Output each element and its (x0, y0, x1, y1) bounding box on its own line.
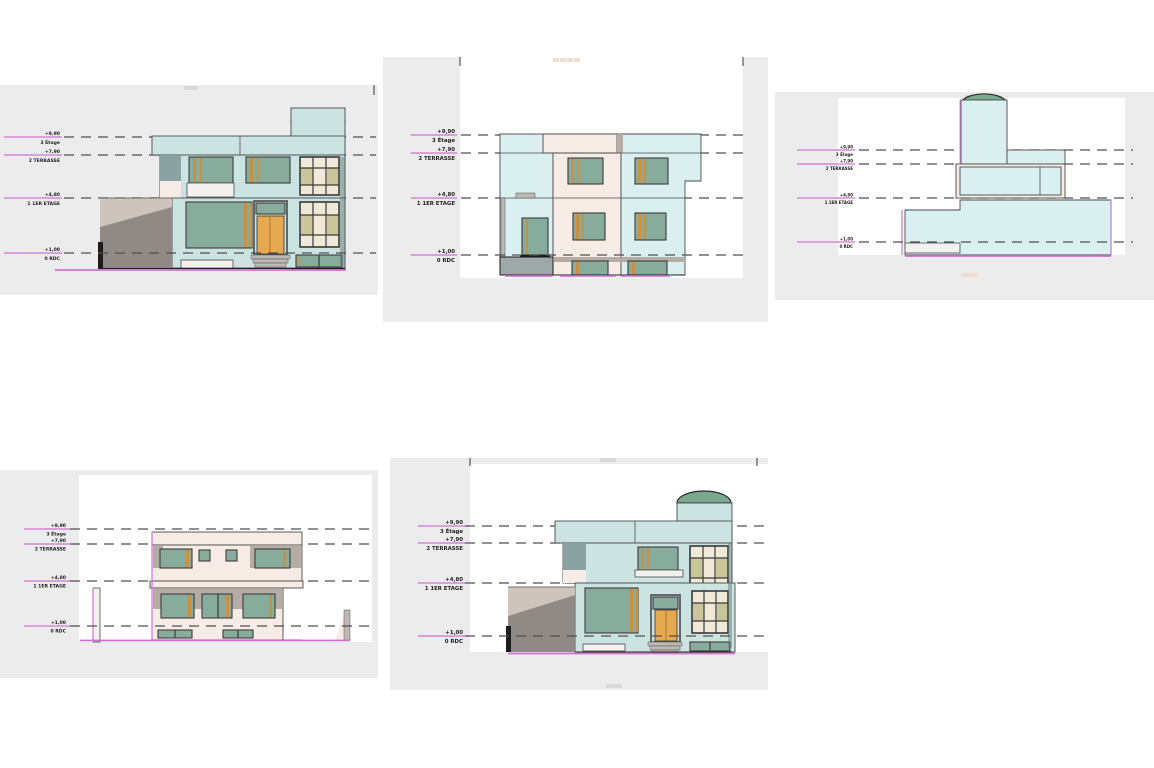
level-value: +9,90 (51, 523, 66, 529)
door-transom (653, 597, 678, 609)
picture-window (186, 202, 252, 248)
entry-door (254, 201, 287, 255)
level-label: 0 RDC (44, 256, 60, 262)
tower-shadow (728, 543, 732, 648)
level-value: +1,00 (45, 247, 60, 253)
drawing-title-placeholder (961, 273, 977, 277)
level-value: +9,90 (437, 129, 455, 135)
level-value: +4,80 (437, 192, 455, 198)
side-elevation-left-drawing: +9,90 3 Étage +7,90 2 TERRASSE +4,80 1 1… (0, 470, 378, 678)
top-parapet (152, 532, 302, 545)
level-label: 0 RDC (445, 639, 463, 645)
level-value: +4,80 (445, 577, 463, 583)
second-floor-window-right (255, 549, 290, 568)
level-value: +7,90 (840, 159, 853, 164)
small-window (226, 550, 237, 561)
level-label: 0 RDC (50, 629, 66, 635)
second-floor-window-right (635, 158, 668, 184)
upper-window-right (246, 157, 290, 183)
level-value: +7,90 (445, 537, 463, 543)
front-elevation-drawing: +9,90 3 Étage +7,90 2 TERRASSE +4,80 1 1… (0, 85, 378, 295)
rdc-window-2 (223, 630, 253, 638)
side-elevation-left-view[interactable]: +9,90 3 Étage +7,90 2 TERRASSE +4,80 1 1… (0, 470, 378, 678)
level-value: +9,90 (45, 131, 60, 137)
upper-window-left (189, 157, 233, 183)
slate-panel (563, 543, 586, 570)
tower-grid-window-upper (300, 157, 339, 195)
second-floor-window-left (160, 549, 192, 568)
picture-window (585, 588, 638, 633)
level-value: +7,90 (437, 147, 455, 153)
gate-post (98, 242, 103, 269)
first-floor-window-right (635, 213, 666, 240)
balcony-parapet (187, 183, 234, 197)
first-floor-window-3 (243, 594, 275, 618)
entry-door (651, 595, 680, 642)
level-value: +4,80 (840, 193, 853, 198)
level-label: 2 TERRASSE (826, 166, 853, 171)
ribbon-window (690, 642, 730, 651)
ribbon-window (296, 255, 342, 267)
mid-block-wall (960, 167, 1061, 195)
level-value: +4,80 (51, 575, 66, 581)
level-value: +1,00 (445, 630, 463, 636)
level-label: 3 Étage (836, 152, 853, 157)
level-value: +7,90 (45, 149, 60, 155)
door-transom (256, 203, 285, 214)
cream-panel (563, 570, 586, 583)
first-floor-window-center (573, 213, 605, 240)
rdc-window-center (572, 261, 608, 275)
drawing-title-placeholder (606, 684, 622, 688)
elevation-sheets-canvas: +9,90 3 Étage +7,90 2 TERRASSE +4,80 1 1… (0, 0, 1154, 768)
level-label: 1 1ER ETAGE (425, 586, 464, 592)
level-label: 2 TERRASSE (35, 547, 66, 553)
first-floor-window-2 (202, 594, 232, 618)
garage-band (583, 644, 625, 651)
rdc-window-1 (158, 630, 192, 638)
tower-grid-window-lower (300, 202, 339, 247)
rdc-window-right (628, 261, 667, 275)
level-value: +4,80 (45, 192, 60, 198)
entry-steps (648, 642, 682, 653)
tower-grid-window-lower (692, 591, 728, 633)
right-post (344, 610, 350, 640)
first-floor-window-1 (161, 594, 194, 618)
roof-parapet (152, 136, 345, 155)
cream-panel (160, 181, 181, 198)
rear-elevation-view[interactable]: +9,90 3 Étage +7,90 2 TERRASSE +4,80 1 1… (383, 57, 768, 322)
level-label: 0 RDC (437, 258, 455, 264)
second-floor-window-center (568, 158, 603, 184)
door-leaf (257, 216, 284, 254)
driveway-ramp (98, 198, 172, 269)
drawing-title-placeholder (184, 86, 198, 90)
level-label: 1 1ER ETAGE (417, 201, 456, 207)
level-label: 3 Étage (440, 527, 463, 535)
front-elevation-view[interactable]: +9,90 3 Étage +7,90 2 TERRASSE +4,80 1 1… (0, 85, 378, 295)
upper-band (1007, 150, 1065, 164)
level-value: +9,90 (840, 145, 853, 150)
downpipe (501, 198, 505, 257)
level-value: +1,00 (51, 620, 66, 626)
rear-elevation-drawing: +9,90 3 Étage +7,90 2 TERRASSE +4,80 1 1… (383, 57, 768, 322)
level-label: 1 1ER ETAGE (825, 200, 854, 205)
roof-parapet (555, 521, 732, 543)
level-value: +7,90 (51, 538, 66, 544)
level-label: 3 Étage (432, 136, 455, 144)
left-post (93, 588, 100, 642)
front-elevation-2-view[interactable]: +9,90 3 Étage +7,90 2 TERRASSE +4,80 1 1… (390, 458, 768, 690)
level-value: +9,90 (445, 520, 463, 526)
level-value: +1,00 (437, 249, 455, 255)
level-label: 1 1ER ETAGE (27, 201, 60, 207)
top-parapet (543, 134, 617, 153)
entry-steps (251, 255, 290, 267)
garage-notch (905, 243, 960, 253)
tower-shadow (340, 157, 345, 267)
front-elevation-2-drawing: +9,90 3 Étage +7,90 2 TERRASSE +4,80 1 1… (390, 458, 768, 690)
level-label: 1 1ER ETAGE (33, 584, 66, 590)
level-label: 2 TERRASSE (418, 156, 455, 162)
floor-slab (150, 581, 303, 588)
level-label: 2 TERRASSE (426, 546, 463, 552)
side-elevation-right-drawing: +9,90 3 Étage +7,90 2 TERRASSE +4,80 1 1… (775, 92, 1154, 300)
tower-wall (961, 100, 1007, 164)
slate-panel (160, 155, 181, 181)
chimney-sliver (617, 134, 623, 153)
small-window (199, 550, 210, 561)
balcony-slab (635, 570, 683, 577)
gate-post (506, 626, 511, 652)
drawing-title-placeholder (600, 458, 616, 462)
side-elevation-right-view[interactable]: +9,90 3 Étage +7,90 2 TERRASSE +4,80 1 1… (775, 92, 1154, 300)
first-floor-glass-door (520, 218, 550, 256)
center-wall (553, 134, 621, 275)
tower-grid-window-upper (690, 546, 728, 588)
level-label: 0 RDC (839, 244, 853, 249)
garage-base (500, 257, 553, 275)
vent (516, 193, 535, 198)
level-label: 2 TERRASSE (29, 158, 60, 164)
garage-band (181, 260, 233, 268)
driveway-ramp (506, 587, 575, 652)
upper-window (638, 547, 678, 570)
level-value: +1,00 (840, 237, 853, 242)
